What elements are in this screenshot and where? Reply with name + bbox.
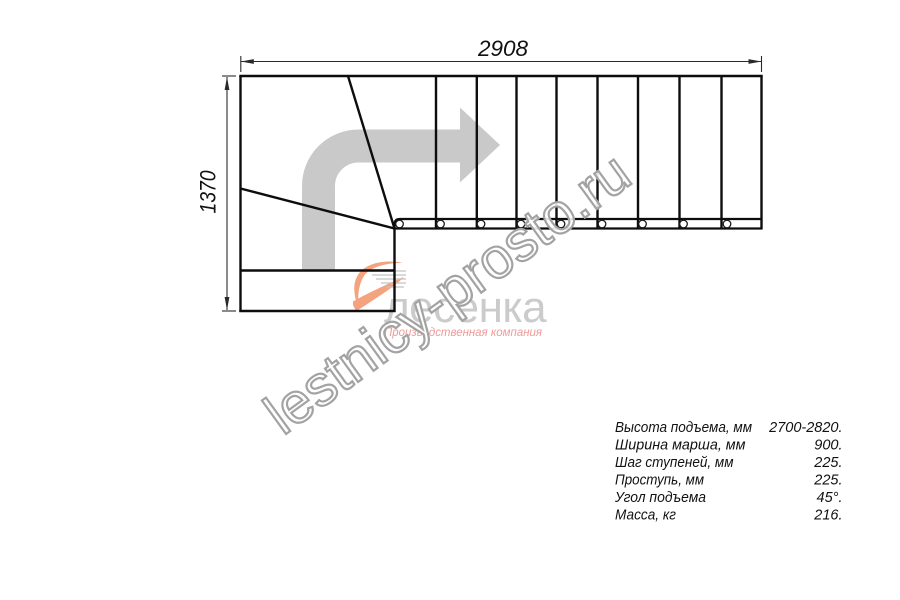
svg-text:45°.: 45°. — [817, 490, 843, 506]
svg-text:Масса, кг: Масса, кг — [615, 508, 676, 524]
svg-text:216.: 216. — [813, 508, 842, 524]
svg-text:2908: 2908 — [477, 36, 529, 61]
svg-text:Шаг ступеней, мм: Шаг ступеней, мм — [615, 455, 734, 471]
svg-text:2700-2820.: 2700-2820. — [768, 420, 842, 436]
svg-text:1370: 1370 — [196, 170, 221, 213]
svg-text:225.: 225. — [813, 455, 842, 471]
svg-text:Проступь, мм: Проступь, мм — [615, 473, 704, 489]
svg-text:900.: 900. — [814, 438, 842, 454]
svg-text:Высота подъема, мм: Высота подъема, мм — [615, 420, 752, 436]
svg-text:Угол подъема: Угол подъема — [614, 490, 706, 506]
svg-text:Ширина марша, мм: Ширина марша, мм — [615, 438, 746, 454]
svg-text:225.: 225. — [813, 473, 842, 489]
